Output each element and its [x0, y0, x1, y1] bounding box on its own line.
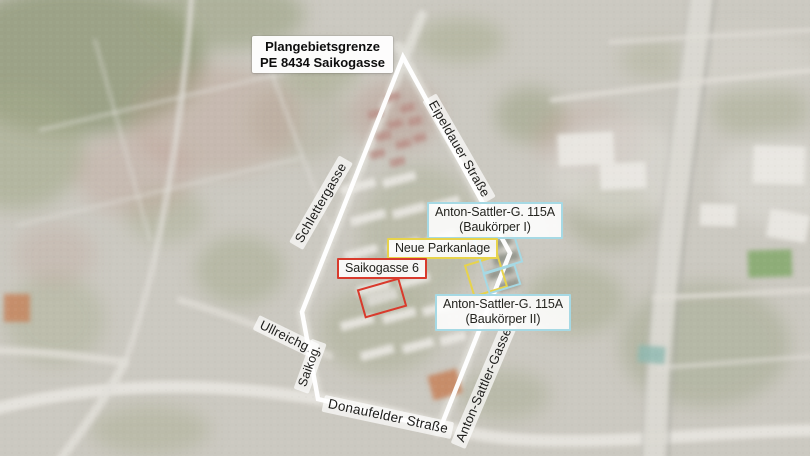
- aerial-plan-map: Schlettergasse Eipeldauer Straße Ullreic…: [0, 0, 810, 456]
- callout-neue-parkanlage-line1: Neue Parkanlage: [395, 241, 490, 256]
- callout-neue-parkanlage: Neue Parkanlage: [387, 238, 498, 259]
- callout-baukoerper-1-line1: Anton-Sattler-G. 115A: [435, 205, 555, 220]
- callout-saikogasse-6: Saikogasse 6: [337, 258, 427, 279]
- callout-saikogasse-6-line1: Saikogasse 6: [345, 261, 419, 276]
- plan-area-title: Plangebietsgrenze PE 8434 Saikogasse: [252, 36, 393, 73]
- plan-area-title-line2: PE 8434 Saikogasse: [260, 55, 385, 71]
- callout-baukoerper-2: Anton-Sattler-G. 115A (Baukörper II): [435, 294, 571, 331]
- highlight-saikogasse6-rect: [358, 279, 406, 317]
- map-overlay: [0, 0, 810, 456]
- callout-baukoerper-2-line1: Anton-Sattler-G. 115A: [443, 297, 563, 312]
- callout-baukoerper-2-line2: (Baukörper II): [443, 312, 563, 327]
- callout-baukoerper-1: Anton-Sattler-G. 115A (Baukörper I): [427, 202, 563, 239]
- plan-area-title-line1: Plangebietsgrenze: [260, 39, 385, 55]
- callout-baukoerper-1-line2: (Baukörper I): [435, 220, 555, 235]
